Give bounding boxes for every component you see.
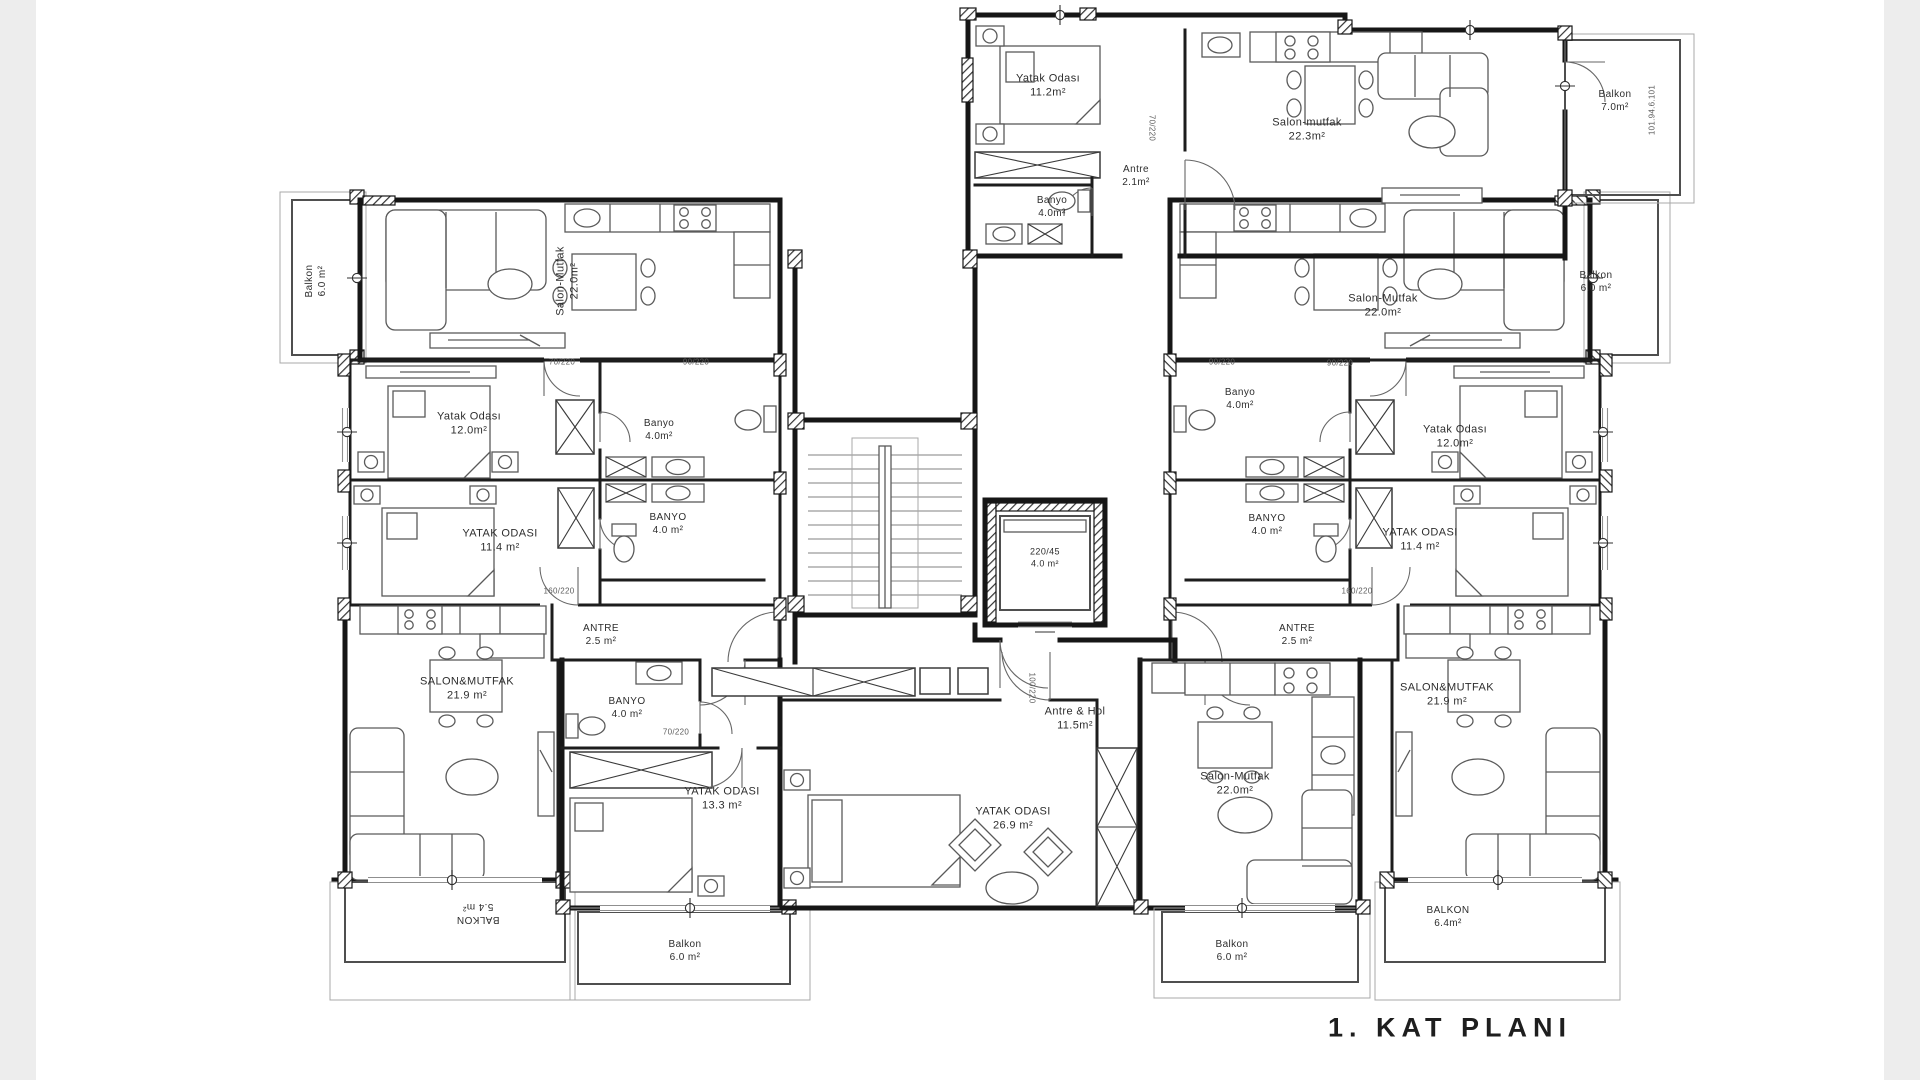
right-wing	[1164, 190, 1670, 1000]
floor-plan-page: Yatak Odası11.2m²Antre2.1m²Banyo4.0m²Sal…	[0, 0, 1920, 1080]
floor-plan-drawing	[0, 0, 1920, 1080]
bottom-center-apartment	[556, 652, 1370, 1000]
plan-title: 1. KAT PLANI	[1328, 1013, 1572, 1044]
stair-core	[788, 250, 1175, 688]
